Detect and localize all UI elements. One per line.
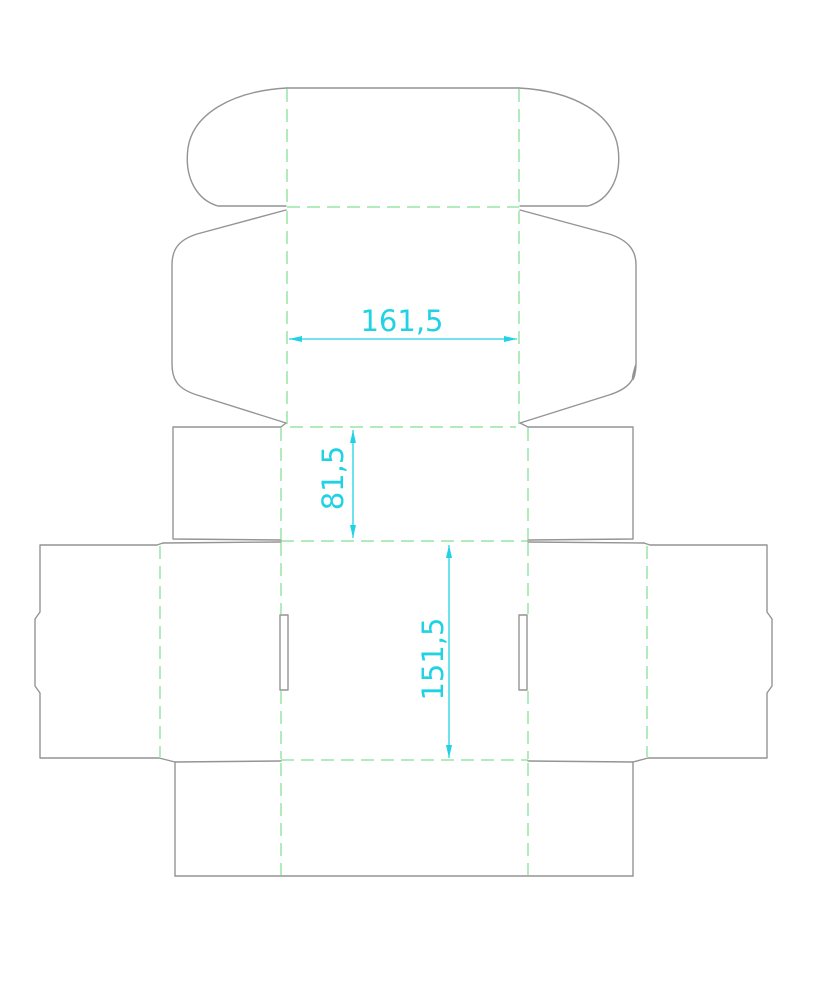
dimension-wall-label: 81,5 (316, 446, 350, 511)
side-panel-top-left (163, 542, 281, 543)
end-flap-right (633, 543, 772, 762)
tuck-ear-left (187, 88, 287, 206)
dimension-annotations: 161,5 81,5 151,5 (289, 304, 517, 758)
lock-slot-right (519, 615, 527, 690)
arrow-right-icon (504, 336, 517, 342)
lock-slot-left (280, 615, 288, 690)
arrow-up-icon (446, 545, 452, 558)
side-panel-bottom-right (528, 761, 633, 762)
front-wall-left (173, 427, 281, 540)
dust-flap-right (520, 210, 636, 427)
dimension-width: 161,5 (289, 304, 517, 342)
tuck-ear-right (519, 88, 619, 206)
side-panel-top-right (528, 542, 644, 543)
front-wall-right (528, 427, 633, 540)
dust-flap-left (172, 210, 286, 427)
dimension-wall-height: 81,5 (316, 430, 356, 538)
side-panel-bottom-left (175, 761, 281, 762)
dieline-drawing: 161,5 81,5 151,5 (0, 0, 814, 1000)
arrow-down-icon (446, 745, 452, 758)
dimension-width-label: 161,5 (360, 304, 443, 338)
arrow-down-icon (350, 525, 356, 538)
dimension-depth: 151,5 (416, 545, 452, 758)
arrow-up-icon (350, 430, 356, 443)
dimension-depth-label: 151,5 (416, 617, 450, 700)
arrow-left-icon (289, 336, 302, 342)
fold-lines (160, 89, 647, 875)
dieline-page: 161,5 81,5 151,5 (0, 0, 814, 1000)
end-flap-left (35, 543, 175, 762)
cut-lines (35, 88, 772, 876)
